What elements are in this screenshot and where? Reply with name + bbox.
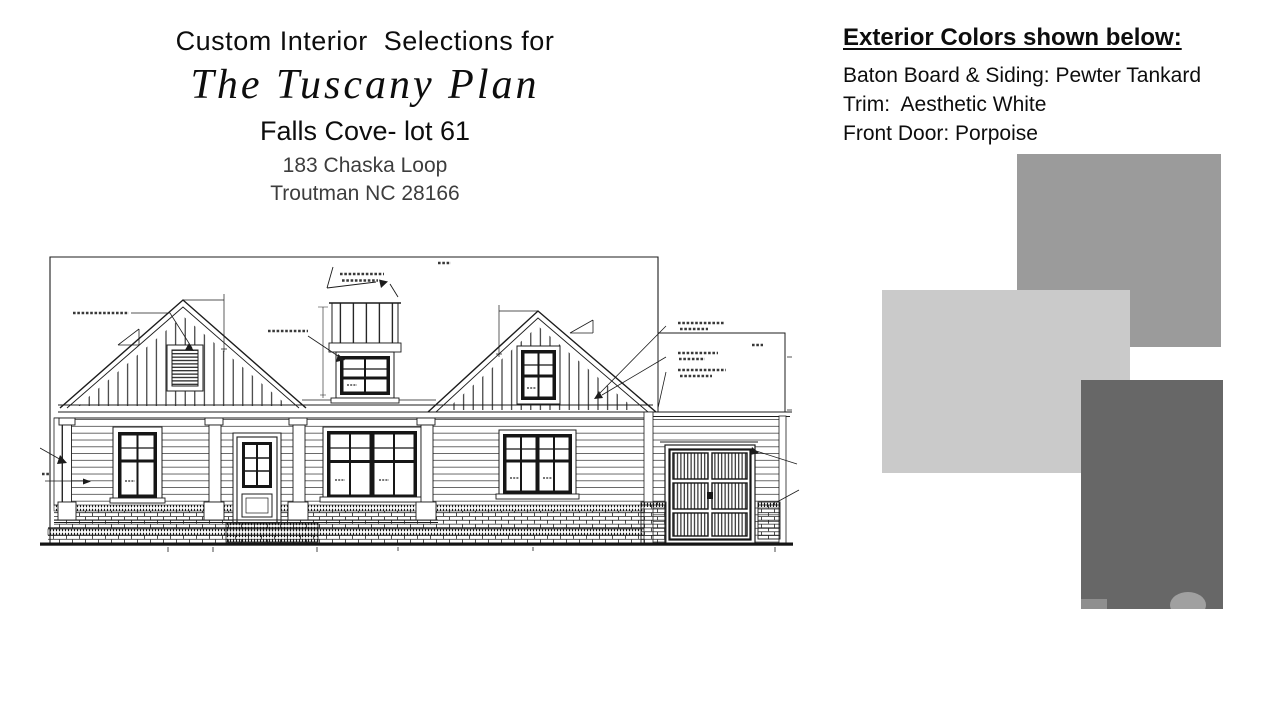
watermark-fragment xyxy=(1170,592,1206,609)
spec-trim-color: Trim: Aesthetic White xyxy=(843,90,1201,119)
window-left xyxy=(110,427,165,503)
brick-foundation xyxy=(48,505,653,543)
dormer xyxy=(318,267,401,403)
exterior-colors-block: Exterior Colors shown below: Baton Board… xyxy=(843,24,1201,148)
left-gable xyxy=(60,294,306,408)
right-gable xyxy=(428,305,656,412)
title-block: Custom Interior Selections for The Tusca… xyxy=(105,26,625,206)
exterior-colors-heading: Exterior Colors shown below: xyxy=(843,24,1201,52)
street-address: 183 Chaska Loop xyxy=(105,154,625,178)
house-elevation-drawing xyxy=(40,250,800,560)
watermark-fragment xyxy=(1081,599,1107,609)
window-right-double xyxy=(496,430,579,499)
garage-roof-box xyxy=(594,323,792,412)
plan-name: The Tuscany Plan xyxy=(105,59,625,111)
community-lot: Falls Cove- lot 61 xyxy=(105,116,625,147)
dormer-window xyxy=(336,352,394,398)
window-center-double xyxy=(320,427,424,502)
selection-sheet-page: Custom Interior Selections for The Tusca… xyxy=(0,0,1280,720)
city-state-zip: Troutman NC 28166 xyxy=(105,182,625,206)
ground-line xyxy=(40,543,793,553)
swatch-porpoise xyxy=(1081,380,1223,609)
spec-siding-color: Baton Board & Siding: Pewter Tankard xyxy=(843,61,1201,90)
title-line: Custom Interior Selections for xyxy=(105,26,625,57)
gable-window xyxy=(517,346,560,404)
spec-door-color: Front Door: Porpoise xyxy=(843,119,1201,148)
front-door xyxy=(233,433,281,523)
